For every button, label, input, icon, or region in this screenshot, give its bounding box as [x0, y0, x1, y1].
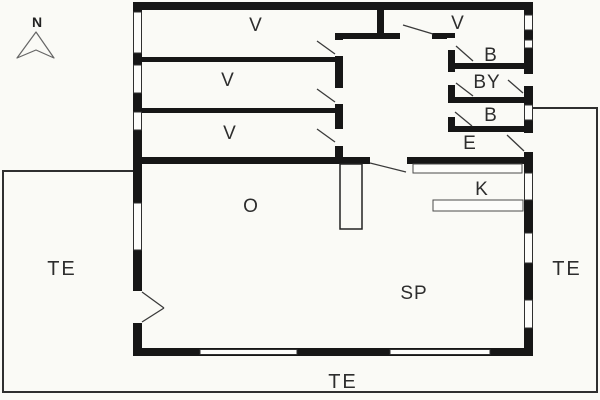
label-room-v1: V — [249, 15, 263, 36]
label-room-b1: B — [484, 45, 498, 66]
wall-main-left — [133, 157, 370, 164]
label-room-entry: E — [463, 133, 477, 154]
window-b2 — [525, 105, 533, 120]
fixtures — [340, 164, 523, 229]
label-room-kitchen: K — [475, 179, 489, 200]
door-gap-v1 — [334, 40, 344, 56]
door-swing-by-exterior — [508, 80, 523, 93]
door-gap-by-exterior — [523, 74, 534, 86]
wall-top — [133, 2, 533, 10]
chimney-stub — [340, 164, 362, 229]
window-sp-right-2 — [525, 300, 533, 328]
wall-b2-bottom — [448, 126, 524, 132]
north-label: N — [32, 14, 42, 30]
door-swing-terrace-lower — [142, 308, 164, 322]
window-v4 — [525, 15, 533, 30]
label-room-v3: V — [223, 123, 237, 144]
label-room-sp: SP — [400, 283, 427, 304]
wall-main-right — [407, 157, 525, 164]
wall-v4-bottom-a — [335, 33, 400, 39]
window-k — [525, 173, 533, 200]
label-room-by: BY — [473, 72, 500, 93]
window-sp-bottom-1 — [200, 350, 297, 355]
wall-v2-v3 — [133, 108, 343, 113]
floor-plan-drawing: N V V V V B BY B E K O SP TE TE TE — [0, 0, 600, 400]
door-swing-v1 — [317, 41, 335, 54]
compass: N — [17, 14, 54, 58]
window-sp-right-1 — [525, 233, 533, 263]
door-gap-front-entrance — [523, 133, 534, 152]
window-v1 — [134, 12, 142, 53]
wall-v1-v2 — [133, 57, 343, 62]
floor-plan: N V V V V B BY B E K O SP TE TE TE — [0, 0, 600, 400]
door-gap-terrace-doors — [132, 291, 143, 323]
label-room-o: O — [243, 196, 259, 217]
door-swing-terrace-upper — [142, 292, 164, 308]
door-swing-v2 — [317, 89, 335, 102]
north-arrow-icon — [17, 32, 54, 58]
label-room-b2: B — [484, 105, 498, 126]
label-terrace-bottom: TE — [328, 371, 358, 393]
door-gap-by — [447, 72, 456, 85]
door-gap-b1 — [447, 38, 456, 50]
exterior-walls — [133, 2, 533, 356]
kitchen-counter-top — [413, 164, 522, 173]
label-room-v4: V — [451, 13, 465, 34]
door-gap-v2 — [334, 88, 344, 104]
kitchen-counter-lower — [433, 200, 523, 211]
label-terrace-left: TE — [47, 258, 77, 280]
window-sp-bottom-2 — [390, 350, 490, 355]
door-swing-front-entrance — [507, 135, 524, 151]
door-swing-by — [456, 83, 473, 96]
door-gap-b2 — [447, 103, 456, 117]
wall-by-b2 — [448, 97, 524, 103]
window-v3 — [134, 112, 142, 130]
window-v2 — [134, 65, 142, 93]
label-room-v2: V — [221, 70, 235, 91]
door-swing-b1 — [456, 46, 473, 61]
label-terrace-right: TE — [552, 258, 582, 280]
terrace-labels: TE TE TE — [47, 258, 582, 393]
door-gap-v4 — [400, 32, 432, 40]
window-b1 — [525, 40, 533, 48]
door-swing-b2 — [455, 112, 472, 126]
door-gap-v3 — [334, 129, 344, 146]
window-o — [134, 203, 142, 250]
door-swing-main-opening — [370, 163, 406, 172]
door-swing-v3 — [317, 129, 335, 142]
